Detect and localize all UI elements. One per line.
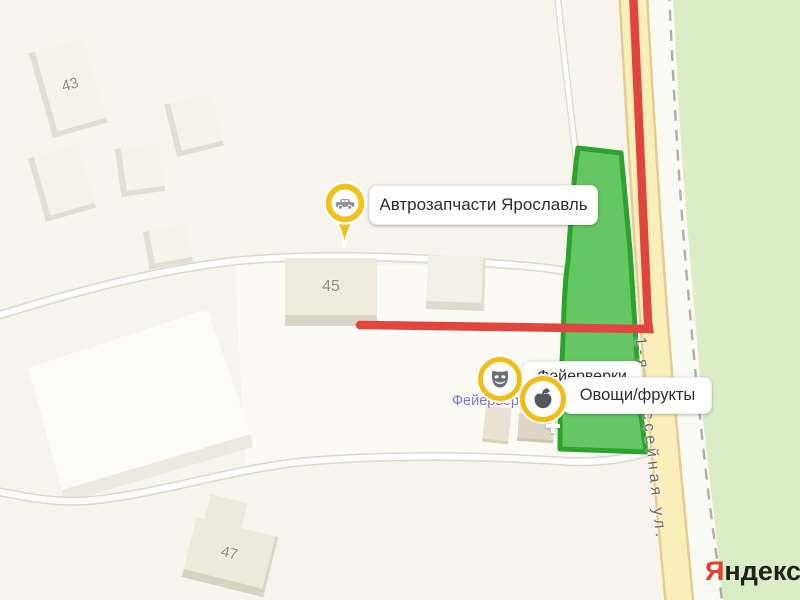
poi-label-produce[interactable]: Овощи/фрукты bbox=[563, 377, 712, 414]
map-canvas[interactable]: 43 45 47 1-я Шоссейная ул. Фейерверки Фе… bbox=[0, 0, 800, 600]
poi-badge-produce[interactable] bbox=[520, 376, 566, 422]
poi-label-text: Овощи/фрукты bbox=[580, 386, 696, 405]
route-line bbox=[360, 0, 649, 329]
theater-mask-icon bbox=[488, 367, 512, 391]
poi-label-text: Автрозапчасти Ярославль bbox=[379, 195, 587, 215]
apple-icon bbox=[530, 386, 556, 412]
poi-label-auto-parts[interactable]: Автрозапчасти Ярославль bbox=[369, 185, 598, 225]
yandex-logo[interactable]: Яндекс bbox=[705, 556, 800, 587]
yandex-logo-rest: ндекс bbox=[724, 556, 800, 586]
poi-badge-fireworks[interactable] bbox=[478, 357, 522, 401]
yandex-logo-ya: Я bbox=[705, 556, 724, 586]
poi-pin-auto-parts[interactable] bbox=[321, 180, 369, 254]
route-layer bbox=[0, 0, 800, 600]
